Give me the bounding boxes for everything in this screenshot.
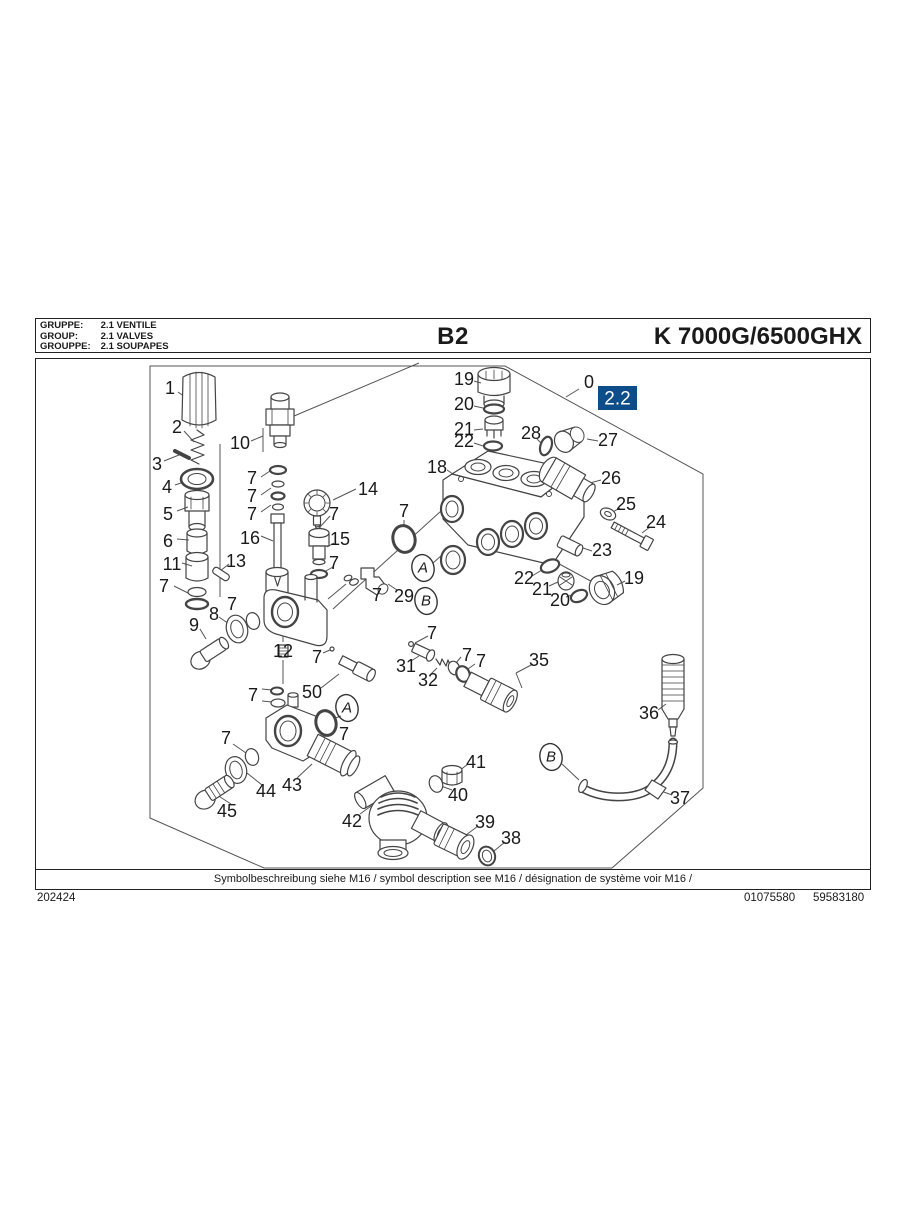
callout-8: 8	[209, 604, 219, 624]
callout-5: 5	[163, 504, 173, 524]
callout-7: 7	[247, 486, 257, 506]
callout-6: 6	[163, 531, 173, 551]
callout-35: 35	[529, 650, 549, 670]
part-10-fitting	[266, 393, 294, 448]
callout-7: 7	[339, 724, 349, 744]
callout-29: 29	[394, 586, 414, 606]
marker-b: B	[537, 741, 565, 773]
callout-20: 20	[550, 590, 570, 610]
part-9-plug	[187, 635, 232, 672]
marker-b: B	[412, 585, 440, 617]
part-1-knob-cap	[182, 372, 216, 428]
callout-7: 7	[427, 623, 437, 643]
callout-1: 1	[165, 378, 175, 398]
callout-22: 22	[454, 431, 474, 451]
part-7-orings-column	[270, 466, 286, 510]
callout-9: 9	[189, 615, 199, 635]
callout-20: 20	[454, 394, 474, 414]
part-4-ring	[181, 469, 213, 489]
callout-0: 0	[584, 372, 594, 392]
callout-19: 19	[624, 568, 644, 588]
callout-38: 38	[501, 828, 521, 848]
callout-14: 14	[358, 479, 378, 499]
callout-19: 19	[454, 369, 474, 389]
callout-28: 28	[521, 423, 541, 443]
part-27-plug	[551, 422, 588, 456]
callout-2: 2	[172, 417, 182, 437]
callout-26: 26	[601, 468, 621, 488]
callout-31: 31	[396, 656, 416, 676]
callout-7: 7	[312, 647, 322, 667]
callout-43: 43	[282, 775, 302, 795]
callout-15: 15	[330, 529, 350, 549]
callout-7: 7	[221, 728, 231, 748]
part-7-oring-large	[390, 523, 418, 555]
callout-3: 3	[152, 454, 162, 474]
callout-37: 37	[670, 788, 690, 808]
callout-7: 7	[329, 504, 339, 524]
callout-11: 11	[163, 554, 182, 574]
callout-7: 7	[462, 645, 472, 665]
part-21-valve-insert	[558, 572, 574, 590]
part-6-sleeve	[187, 529, 207, 554]
part-22-oring-top	[484, 442, 502, 451]
callout-39: 39	[475, 812, 495, 832]
callout-32: 32	[418, 670, 438, 690]
callout-27: 27	[598, 430, 618, 450]
callout-7: 7	[247, 504, 257, 524]
callout-7: 7	[248, 685, 258, 705]
svg-text:B: B	[546, 749, 556, 766]
part-19-cap-top	[478, 368, 510, 409]
callout-7: 7	[227, 594, 237, 614]
part-36-filter	[662, 655, 684, 737]
part-38-washer	[476, 844, 497, 867]
callout-7: 7	[329, 553, 339, 573]
callout-7: 7	[399, 501, 409, 521]
marker-a: A	[409, 552, 437, 584]
part-23-plug	[557, 535, 585, 557]
callout-42: 42	[342, 811, 362, 831]
svg-text:B: B	[421, 593, 431, 610]
part-5-valve	[185, 491, 209, 531]
callout-40: 40	[448, 785, 468, 805]
callout-36: 36	[639, 703, 659, 723]
part-3-pin	[175, 451, 189, 458]
catalog-page: { "header": { "rows": [ {"label": "GRUPP…	[0, 0, 906, 1208]
callout-50: 50	[302, 682, 322, 702]
part-7-orings-pair	[271, 688, 285, 708]
callout-7: 7	[247, 468, 257, 488]
callout-24: 24	[646, 512, 666, 532]
callout-45: 45	[217, 801, 237, 821]
part-21-valve-insert-top	[485, 416, 503, 438]
svg-text:A: A	[341, 700, 352, 717]
section-badge-label: 2.2	[604, 389, 630, 410]
part-37-hose	[577, 740, 678, 799]
section-badge: 2.2	[598, 386, 637, 410]
part-7-orings-left	[186, 588, 208, 610]
callout-10: 10	[230, 433, 250, 453]
callout-44: 44	[256, 781, 276, 801]
callout-41: 41	[466, 752, 486, 772]
part-20-oring-top	[484, 405, 504, 414]
callout-7: 7	[372, 585, 382, 605]
svg-text:A: A	[417, 560, 428, 577]
part-41-nut	[442, 766, 462, 786]
callout-25: 25	[616, 494, 636, 514]
part-7-ball	[409, 642, 414, 647]
callout-13: 13	[226, 551, 246, 571]
part-11-sleeve	[186, 553, 208, 582]
part-35-coupling	[462, 669, 520, 714]
part-29-elbow	[343, 568, 390, 596]
marker-a: A	[333, 692, 361, 724]
callout-16: 16	[240, 528, 260, 548]
part-25-washer	[598, 506, 617, 523]
part-2-spring	[191, 430, 204, 464]
callout-7: 7	[159, 576, 169, 596]
part-19-cap	[584, 567, 627, 609]
part-50-pin	[338, 654, 377, 683]
part-20-oring	[569, 587, 589, 604]
part-14-knob	[304, 490, 330, 531]
part-7-ball	[330, 647, 334, 651]
part-7-oring	[244, 747, 261, 767]
part-15-valve	[309, 529, 329, 565]
callout-12: 12	[273, 641, 293, 661]
callout-4: 4	[162, 477, 172, 497]
callout-7: 7	[476, 651, 486, 671]
callout-23: 23	[592, 540, 612, 560]
exploded-view-drawing: 2.2 123456111371077716147157879127297181…	[0, 0, 906, 1208]
callout-18: 18	[427, 457, 447, 477]
